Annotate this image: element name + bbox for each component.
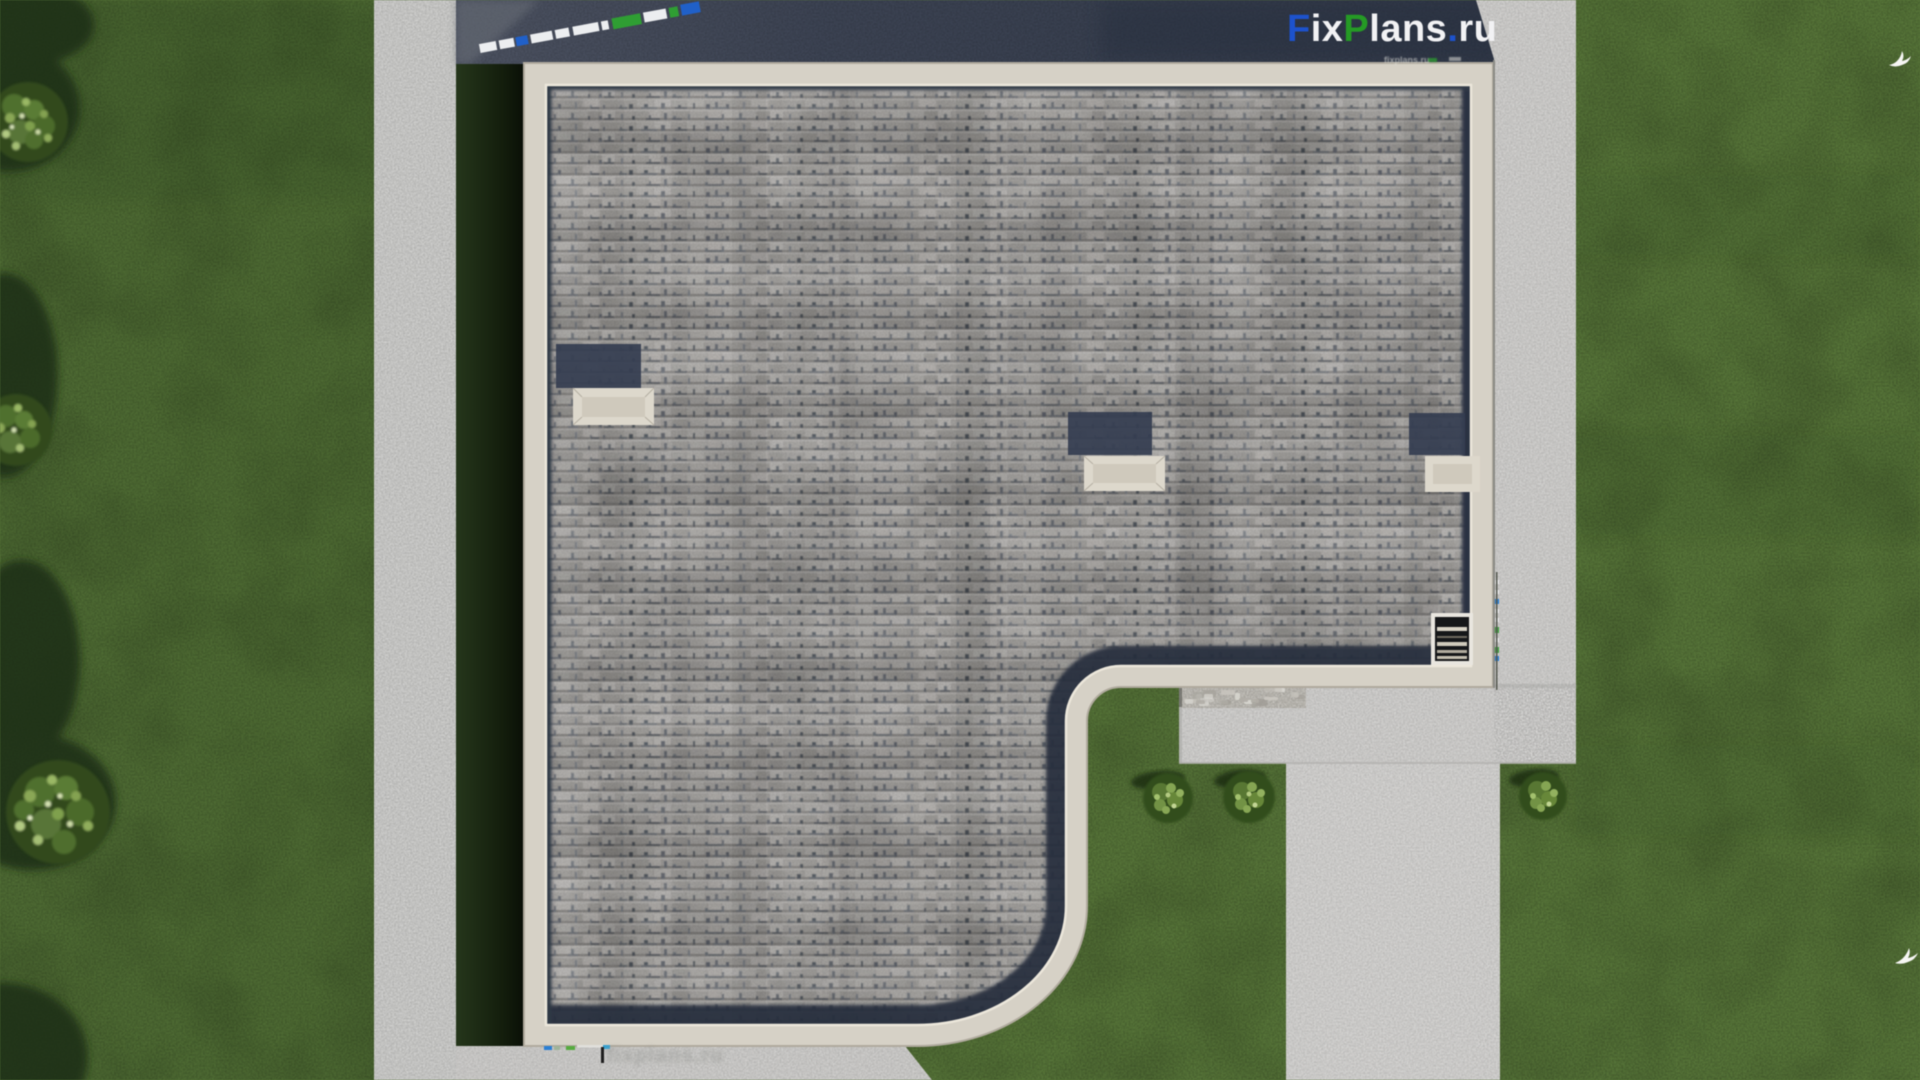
svg-text:fixplans.ru: fixplans.ru (607, 1044, 724, 1067)
svg-text:fixplans.ru: fixplans.ru (1384, 55, 1430, 65)
svg-text:FixPlans.ru: FixPlans.ru (1287, 8, 1497, 50)
